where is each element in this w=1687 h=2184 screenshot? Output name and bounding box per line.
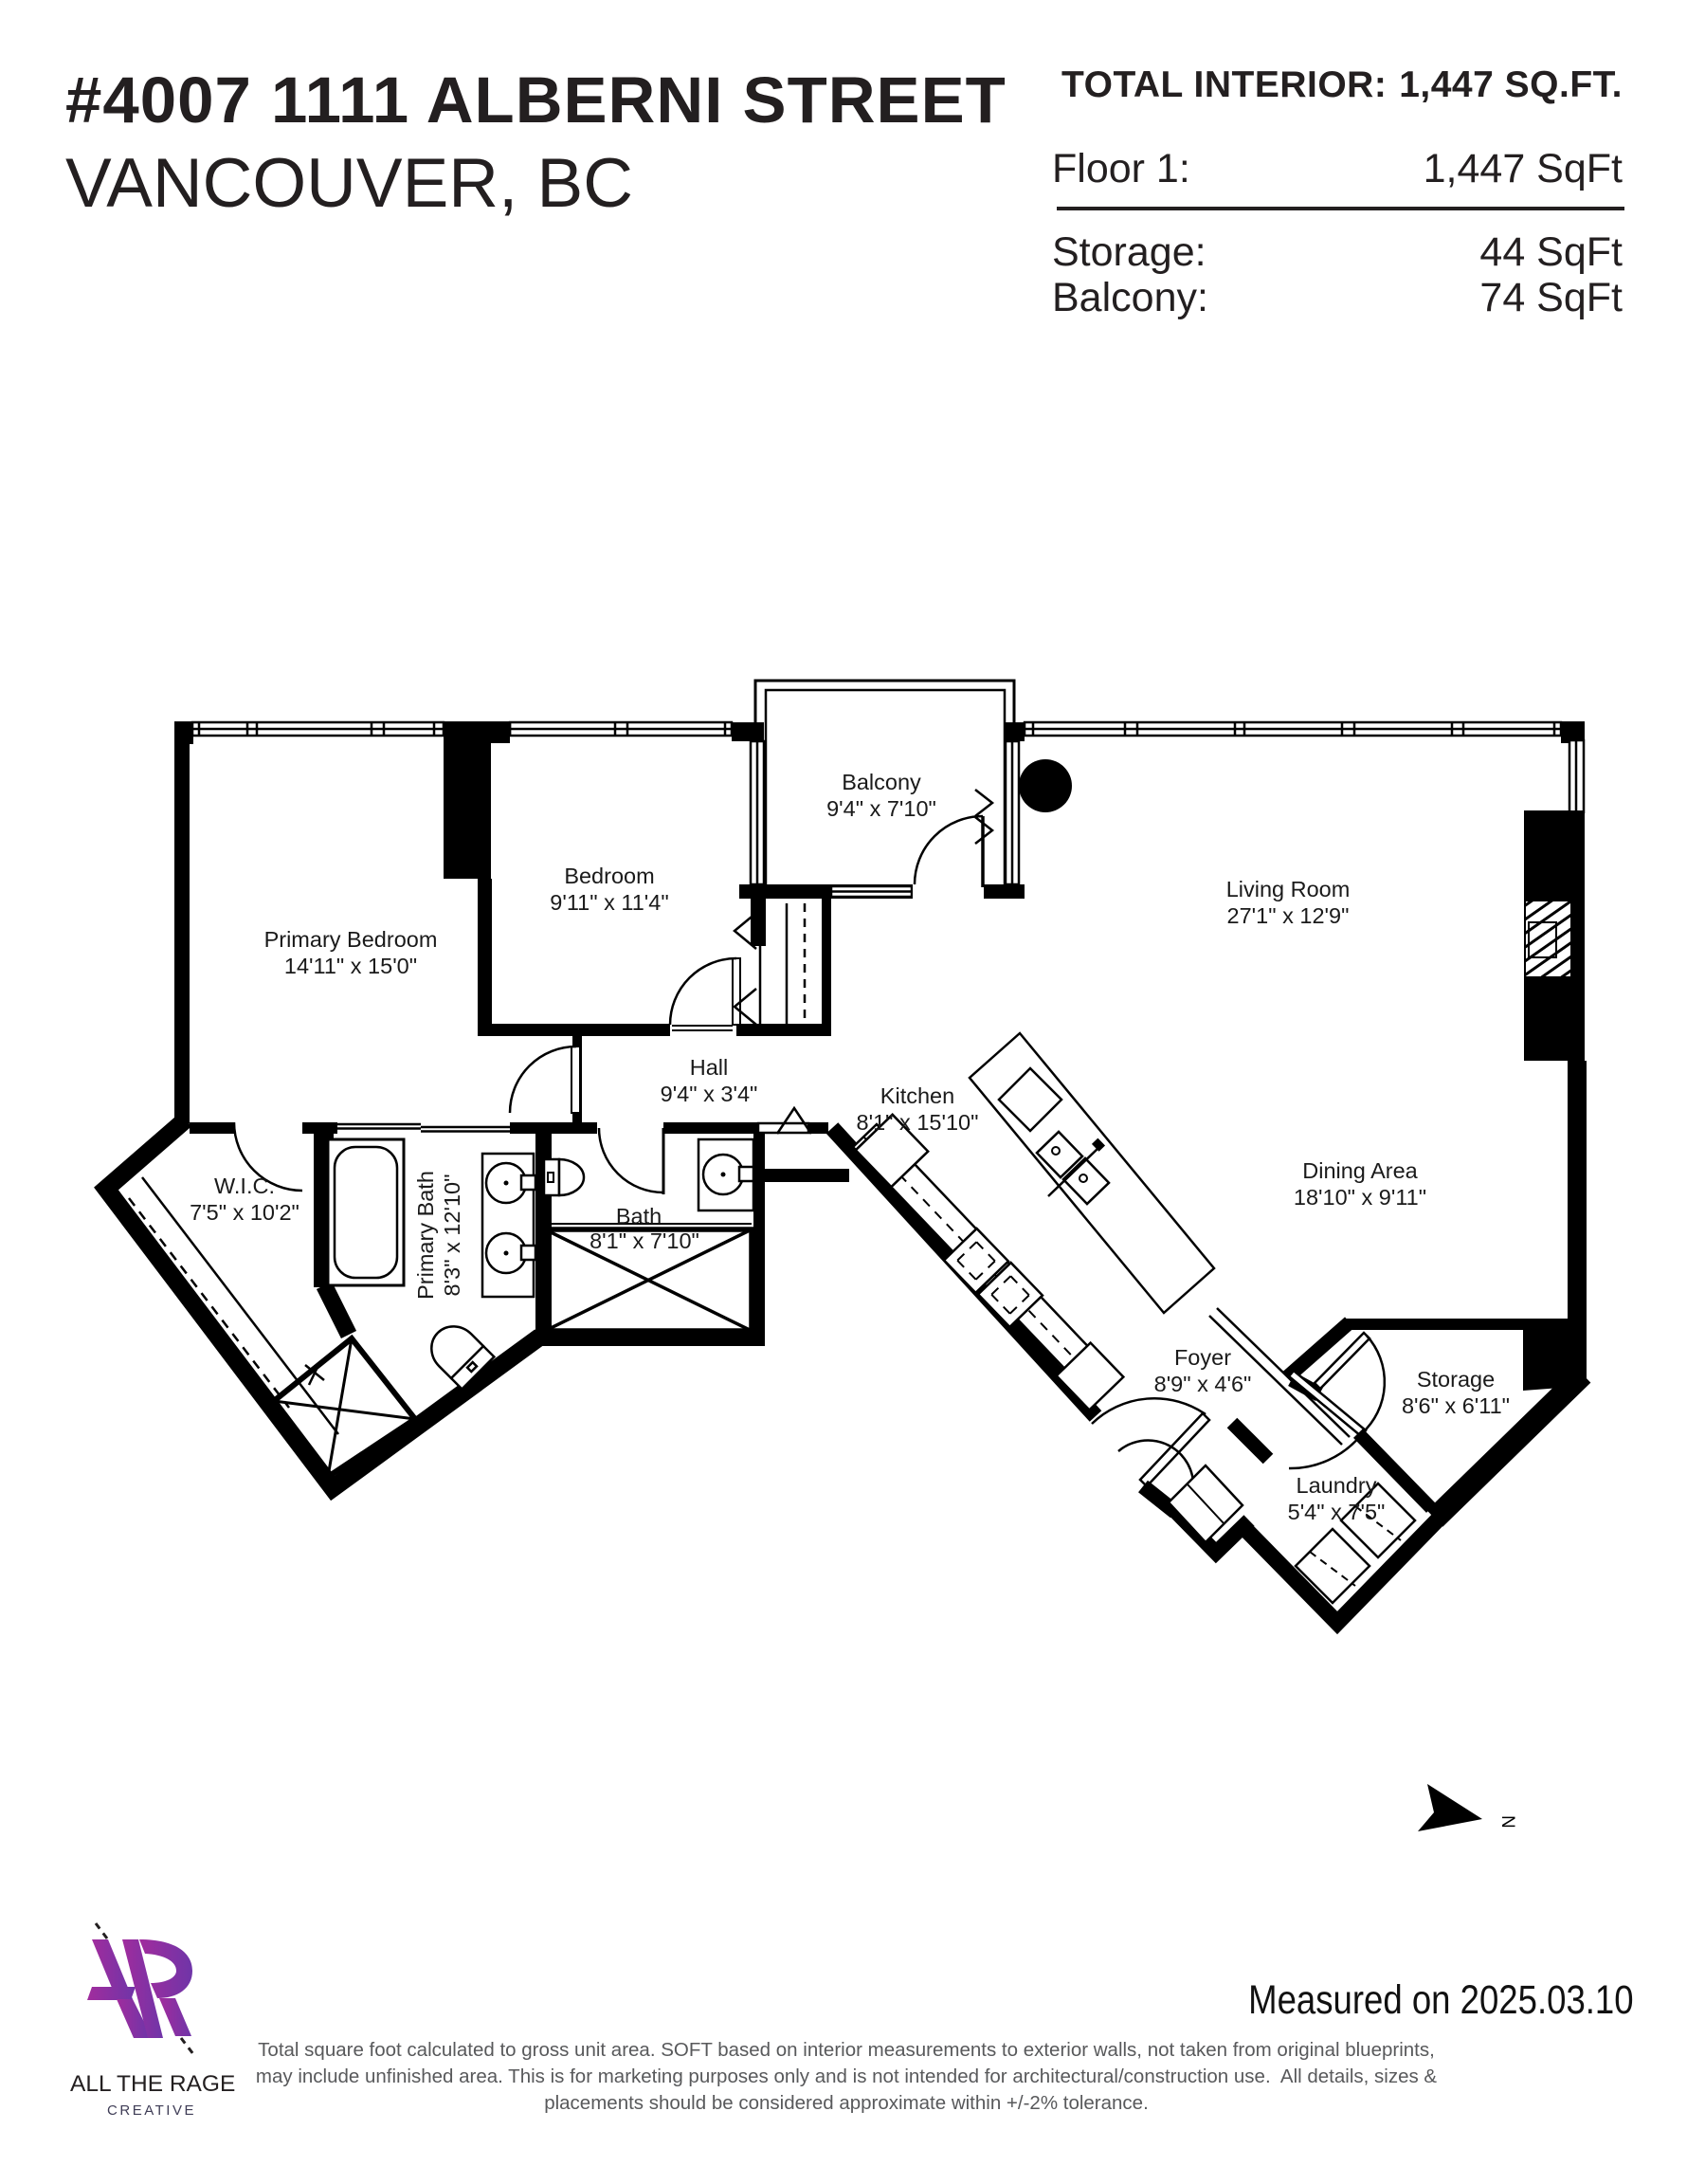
svg-text:Primary Bedroom: Primary Bedroom [264,927,438,952]
svg-text:Bath: Bath [616,1204,662,1228]
svg-text:Primary Bath: Primary Bath [413,1171,438,1300]
svg-text:Foyer: Foyer [1174,1345,1231,1370]
svg-text:W.I.C.: W.I.C. [214,1174,275,1198]
svg-text:27'1" x 12'9": 27'1" x 12'9" [1227,903,1350,928]
svg-text:7'5" x 10'2": 7'5" x 10'2" [190,1200,299,1225]
svg-text:9'4" x 7'10": 9'4" x 7'10" [826,796,936,821]
svg-text:Kitchen: Kitchen [880,1083,954,1108]
svg-text:Living Room: Living Room [1226,877,1351,901]
svg-text:8'9" x 4'6": 8'9" x 4'6" [1154,1372,1252,1396]
svg-text:5'4" x 7'5": 5'4" x 7'5" [1288,1500,1386,1524]
svg-text:Hall: Hall [690,1055,728,1080]
svg-text:14'11" x 15'0": 14'11" x 15'0" [284,954,417,978]
svg-text:9'11" x 11'4": 9'11" x 11'4" [550,890,668,915]
svg-text:8'3" x 12'10": 8'3" x 12'10" [440,1174,464,1297]
svg-text:Bedroom: Bedroom [564,864,654,888]
svg-text:8'6" x 6'11": 8'6" x 6'11" [1402,1393,1510,1418]
svg-text:N: N [1497,1815,1517,1829]
svg-text:Storage: Storage [1417,1367,1495,1392]
svg-text:18'10" x 9'11": 18'10" x 9'11" [1294,1185,1426,1210]
svg-text:Laundry: Laundry [1297,1473,1377,1498]
svg-text:8'1" x 15'10": 8'1" x 15'10" [857,1110,979,1135]
svg-text:Dining Area: Dining Area [1302,1158,1418,1183]
svg-text:9'4" x 3'4": 9'4" x 3'4" [661,1082,758,1106]
svg-text:Balcony: Balcony [842,770,921,794]
svg-text:8'1" x 7'10": 8'1" x 7'10" [590,1228,699,1253]
